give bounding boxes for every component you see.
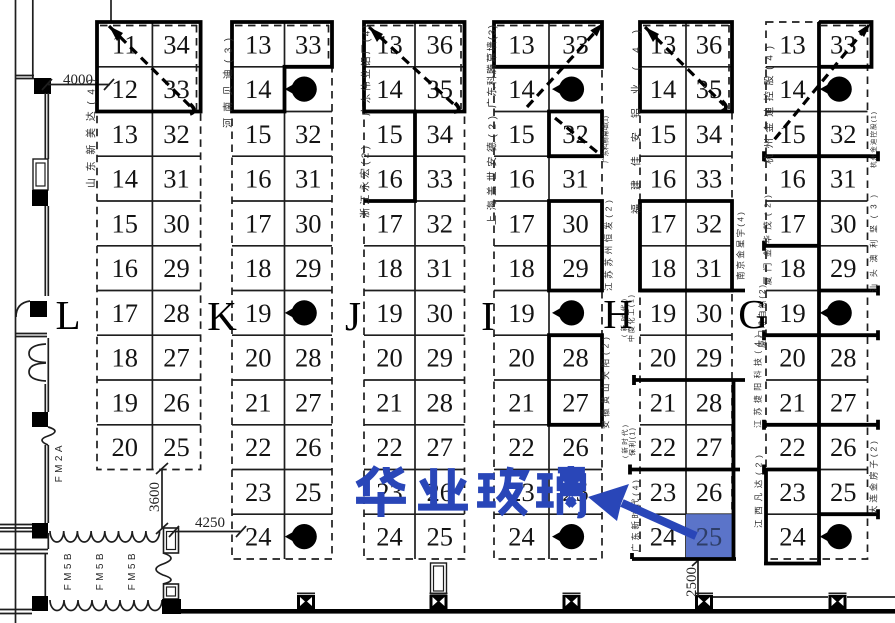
svg-text:19: 19 xyxy=(111,387,138,417)
svg-text:22: 22 xyxy=(779,432,806,462)
svg-text:20: 20 xyxy=(650,343,677,373)
svg-text:33: 33 xyxy=(295,29,322,59)
svg-text:I: I xyxy=(481,293,495,339)
svg-text:28: 28 xyxy=(295,343,322,373)
svg-text:16: 16 xyxy=(376,164,403,194)
svg-text:25: 25 xyxy=(696,522,723,552)
svg-text:12: 12 xyxy=(111,74,138,104)
svg-text:保利(1): 保利(1) xyxy=(628,428,637,456)
svg-text:30: 30 xyxy=(163,208,190,238)
svg-text:G: G xyxy=(738,291,768,337)
svg-text:15: 15 xyxy=(376,119,403,149)
svg-text:24: 24 xyxy=(376,522,403,552)
svg-text:大连金房子(2): 大连金房子(2) xyxy=(869,441,879,514)
svg-text:15: 15 xyxy=(245,119,272,149)
svg-text:21: 21 xyxy=(779,387,806,417)
svg-text:15: 15 xyxy=(779,119,806,149)
svg-text:27: 27 xyxy=(427,432,454,462)
svg-text:20: 20 xyxy=(779,343,806,373)
svg-text:27: 27 xyxy=(830,387,857,417)
svg-text:14: 14 xyxy=(245,74,272,104)
svg-text:南京金星宇(4): 南京金星宇(4) xyxy=(736,212,746,280)
svg-text:杭州金迪控股(1): 杭州金迪控股(1) xyxy=(869,112,878,168)
svg-text:14: 14 xyxy=(111,164,138,194)
svg-text:36: 36 xyxy=(696,29,723,59)
svg-text:29: 29 xyxy=(163,253,190,283)
svg-text:24: 24 xyxy=(245,522,272,552)
svg-text:广东科腾幕墙(1): 广东科腾幕墙(1) xyxy=(601,116,610,163)
svg-text:20: 20 xyxy=(508,343,535,373)
svg-text:28: 28 xyxy=(562,343,589,373)
svg-text:31: 31 xyxy=(830,164,857,194)
svg-text:13: 13 xyxy=(245,29,272,59)
svg-text:29: 29 xyxy=(427,343,454,373)
svg-text:27: 27 xyxy=(562,387,589,417)
svg-text:14: 14 xyxy=(779,74,806,104)
svg-text:26: 26 xyxy=(830,432,857,462)
svg-text:广东伟业铝厂(4): 广东伟业铝厂(4) xyxy=(360,25,373,116)
svg-text:14: 14 xyxy=(650,74,677,104)
svg-text:26: 26 xyxy=(562,432,589,462)
svg-text:36: 36 xyxy=(427,29,454,59)
svg-text:25: 25 xyxy=(163,432,190,462)
svg-text:20: 20 xyxy=(376,343,403,373)
svg-text:14: 14 xyxy=(508,74,535,104)
svg-text:21: 21 xyxy=(245,387,272,417)
svg-text:J: J xyxy=(345,293,361,339)
svg-text:31: 31 xyxy=(427,253,454,283)
svg-text:3600: 3600 xyxy=(147,482,163,512)
svg-text:汕头澳利坚(3): 汕头澳利坚(3) xyxy=(869,195,879,292)
svg-text:21: 21 xyxy=(650,387,677,417)
svg-text:19: 19 xyxy=(245,298,272,328)
svg-text:15: 15 xyxy=(650,119,677,149)
svg-text:19: 19 xyxy=(376,298,403,328)
svg-text:27: 27 xyxy=(163,343,190,373)
svg-text:21: 21 xyxy=(376,387,403,417)
svg-text:17: 17 xyxy=(111,298,138,328)
svg-text:19: 19 xyxy=(779,298,806,328)
svg-text:28: 28 xyxy=(696,387,723,417)
svg-text:22: 22 xyxy=(508,432,535,462)
svg-text:29: 29 xyxy=(830,253,857,283)
svg-text:34: 34 xyxy=(696,119,723,149)
svg-text:34: 34 xyxy=(163,29,190,59)
svg-text:19: 19 xyxy=(650,298,677,328)
svg-text:33: 33 xyxy=(427,164,454,194)
svg-text:26: 26 xyxy=(295,432,322,462)
svg-text:31: 31 xyxy=(295,164,322,194)
svg-text:32: 32 xyxy=(696,208,723,238)
svg-text:28: 28 xyxy=(427,387,454,417)
svg-text:13: 13 xyxy=(111,119,138,149)
svg-text:(新时代): (新时代) xyxy=(620,425,629,458)
svg-text:17: 17 xyxy=(376,208,403,238)
svg-text:K: K xyxy=(207,293,237,339)
svg-text:17: 17 xyxy=(245,208,272,238)
svg-text:广东科腾幕墙(3): 广东科腾幕墙(3) xyxy=(486,25,499,108)
svg-text:15: 15 xyxy=(508,119,535,149)
svg-text:27: 27 xyxy=(696,432,723,462)
svg-text:19: 19 xyxy=(508,298,535,328)
svg-text:18: 18 xyxy=(650,253,677,283)
svg-text:13: 13 xyxy=(779,29,806,59)
svg-text:18: 18 xyxy=(376,253,403,283)
svg-text:22: 22 xyxy=(376,432,403,462)
svg-text:17: 17 xyxy=(779,208,806,238)
svg-text:32: 32 xyxy=(427,208,454,238)
svg-text:20: 20 xyxy=(111,432,138,462)
svg-text:23: 23 xyxy=(245,477,272,507)
svg-text:4250: 4250 xyxy=(195,515,225,531)
svg-text:17: 17 xyxy=(650,208,677,238)
svg-text:18: 18 xyxy=(508,253,535,283)
svg-text:33: 33 xyxy=(696,164,723,194)
svg-text:26: 26 xyxy=(163,387,190,417)
svg-text:33: 33 xyxy=(562,29,589,59)
svg-text:30: 30 xyxy=(427,298,454,328)
svg-text:16: 16 xyxy=(111,253,138,283)
svg-text:30: 30 xyxy=(696,298,723,328)
svg-text:23: 23 xyxy=(779,477,806,507)
svg-text:18: 18 xyxy=(779,253,806,283)
svg-text:24: 24 xyxy=(508,522,535,552)
svg-text:28: 28 xyxy=(830,343,857,373)
svg-text:30: 30 xyxy=(562,208,589,238)
svg-text:厦门金华茂(2): 厦门金华茂(2) xyxy=(763,195,773,285)
svg-text:31: 31 xyxy=(562,164,589,194)
svg-text:23: 23 xyxy=(650,477,677,507)
svg-text:16: 16 xyxy=(245,164,272,194)
svg-text:16: 16 xyxy=(650,164,677,194)
svg-text:广东新时代(4): 广东新时代(4) xyxy=(631,480,641,552)
svg-text:30: 30 xyxy=(830,208,857,238)
svg-text:31: 31 xyxy=(696,253,723,283)
svg-text:22: 22 xyxy=(245,432,272,462)
svg-text:32: 32 xyxy=(163,119,190,149)
svg-text:25: 25 xyxy=(830,477,857,507)
svg-text:17: 17 xyxy=(508,208,535,238)
svg-text:26: 26 xyxy=(696,477,723,507)
svg-text:16: 16 xyxy=(779,164,806,194)
svg-text:24: 24 xyxy=(779,522,806,552)
svg-text:35: 35 xyxy=(696,74,723,104)
svg-text:32: 32 xyxy=(562,119,589,149)
svg-text:29: 29 xyxy=(696,343,723,373)
svg-text:14: 14 xyxy=(376,74,403,104)
svg-text:29: 29 xyxy=(562,253,589,283)
svg-text:20: 20 xyxy=(245,343,272,373)
svg-text:13: 13 xyxy=(508,29,535,59)
svg-text:21: 21 xyxy=(508,387,535,417)
svg-text:33: 33 xyxy=(163,74,190,104)
svg-text:27: 27 xyxy=(295,387,322,417)
svg-text:H: H xyxy=(603,291,633,337)
svg-text:31: 31 xyxy=(163,164,190,194)
svg-text:18: 18 xyxy=(111,343,138,373)
svg-text:山东新美达(4): 山东新美达(4) xyxy=(85,79,98,188)
svg-text:32: 32 xyxy=(830,119,857,149)
svg-text:18: 18 xyxy=(245,253,272,283)
svg-text:28: 28 xyxy=(163,298,190,328)
svg-text:34: 34 xyxy=(427,119,454,149)
svg-text:22: 22 xyxy=(650,432,677,462)
svg-text:29: 29 xyxy=(295,253,322,283)
svg-text:32: 32 xyxy=(295,119,322,149)
svg-text:L: L xyxy=(55,292,80,338)
svg-text:25: 25 xyxy=(295,477,322,507)
svg-text:25: 25 xyxy=(427,522,454,552)
svg-text:30: 30 xyxy=(295,208,322,238)
svg-text:15: 15 xyxy=(111,208,138,238)
svg-text:16: 16 xyxy=(508,164,535,194)
